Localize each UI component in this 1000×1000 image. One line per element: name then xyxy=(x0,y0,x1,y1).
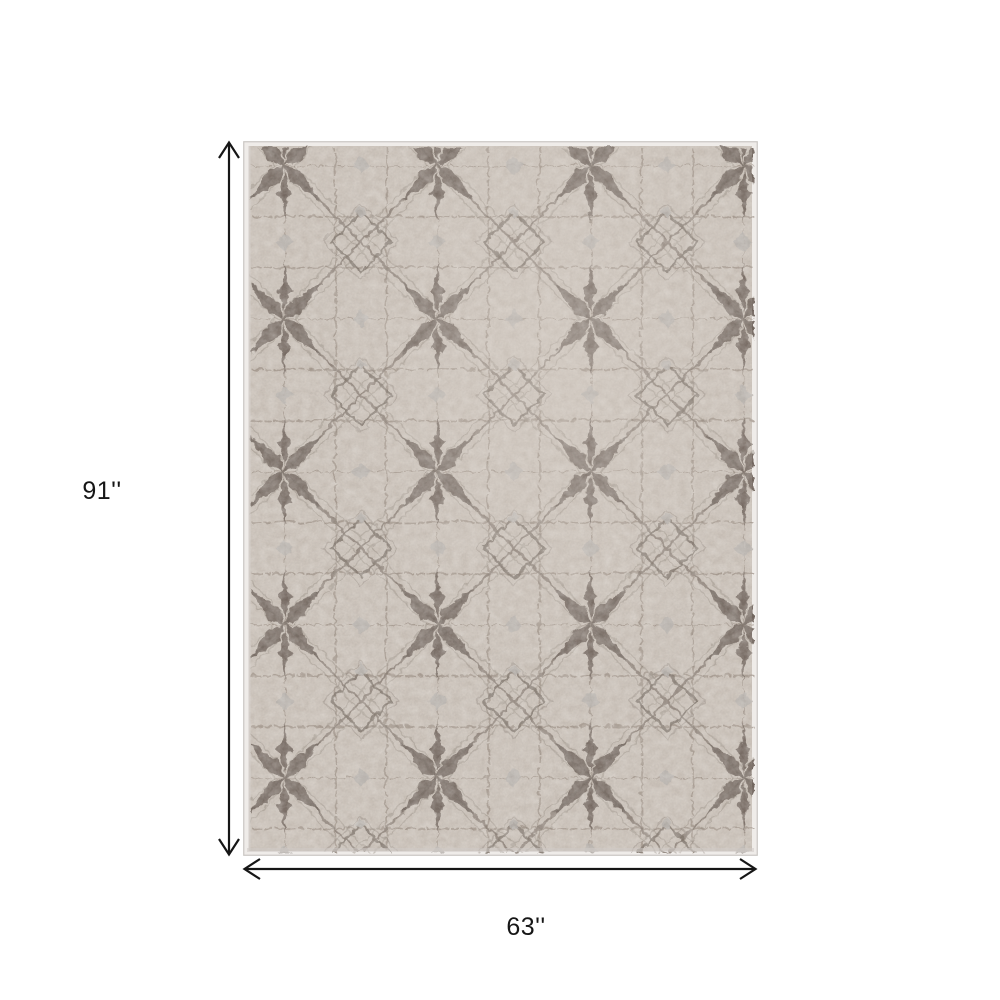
rug-left-shade xyxy=(248,146,251,851)
rug-light-patch xyxy=(249,146,752,851)
width-dimension-label: 63'' xyxy=(481,915,571,940)
rug-graphic xyxy=(243,141,758,856)
rug-image xyxy=(243,141,758,856)
height-dimension-arrow xyxy=(219,143,239,855)
rug-bottom-shade xyxy=(247,848,754,852)
product-dimension-image: 91'' 63'' xyxy=(0,0,1000,1000)
height-dimension-label: 91'' xyxy=(57,479,147,504)
width-dimension-arrow xyxy=(245,859,756,879)
